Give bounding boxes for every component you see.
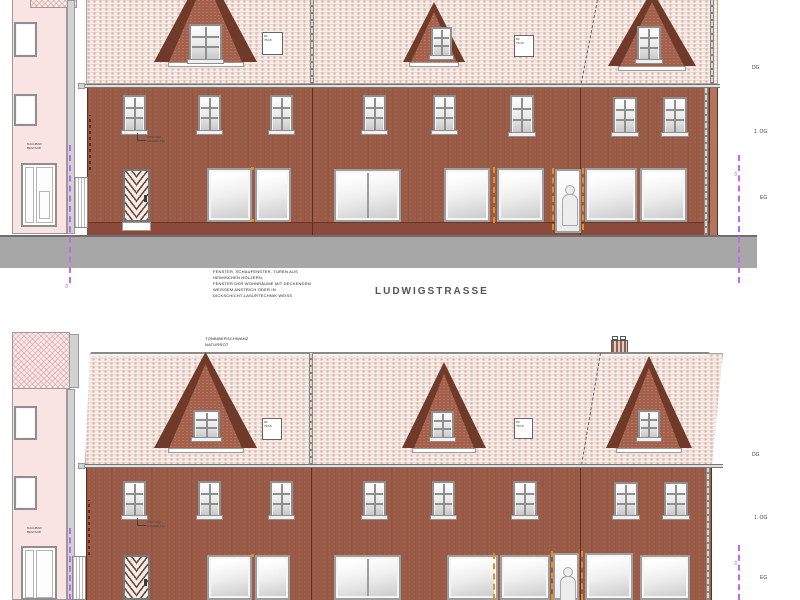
skylight-size: 76/18 bbox=[516, 424, 531, 428]
floor-label-eg: EG bbox=[760, 575, 767, 581]
entrance-door-glass bbox=[555, 169, 581, 233]
shop-window bbox=[497, 168, 544, 222]
shop-window bbox=[207, 168, 252, 222]
facade-plinth bbox=[87, 222, 710, 235]
window bbox=[198, 95, 221, 133]
window bbox=[510, 95, 534, 135]
neighbor-label-line: BESTAND bbox=[27, 530, 42, 534]
skylight: DF 76/18 bbox=[514, 35, 534, 57]
floor-label-eg: EG bbox=[760, 195, 767, 201]
skylight: DF 76/18 bbox=[262, 32, 283, 55]
materials-note: FENSTER, SCHAUFENSTER, TÜREN AUS HEIMISC… bbox=[213, 269, 311, 299]
window bbox=[270, 481, 293, 518]
downpipe bbox=[310, 0, 314, 84]
marker-dashed bbox=[493, 167, 495, 223]
window bbox=[432, 481, 455, 518]
marker-dashed bbox=[581, 551, 583, 600]
shop-window bbox=[585, 553, 633, 600]
guard-note-line: SICHERUNG bbox=[147, 524, 165, 528]
marker-dashed bbox=[582, 168, 584, 230]
gutter-bracket bbox=[78, 83, 85, 89]
leader-line bbox=[137, 525, 146, 526]
leader-line bbox=[137, 140, 146, 141]
dormer-window bbox=[189, 24, 222, 62]
door-chevron-right bbox=[137, 557, 149, 598]
facade-joint-line bbox=[311, 468, 312, 600]
person-silhouette-body bbox=[562, 194, 578, 226]
neighbor-door bbox=[21, 163, 57, 227]
dormer-sill bbox=[409, 62, 459, 67]
downpipe bbox=[706, 468, 710, 600]
neighbor-window bbox=[14, 476, 37, 510]
skylight-size: 76/18 bbox=[264, 38, 281, 42]
entrance-door-wood bbox=[123, 555, 150, 600]
door-pane bbox=[39, 191, 50, 219]
shop-window bbox=[207, 555, 252, 600]
door-handle bbox=[144, 195, 147, 202]
property-boundary-line bbox=[69, 528, 71, 600]
floor-label-og: 1. OG bbox=[754, 129, 767, 135]
skylight-size: 76/18 bbox=[516, 41, 532, 45]
shop-window bbox=[255, 168, 291, 222]
skylight: DF 76/18 bbox=[262, 418, 282, 440]
property-boundary-line bbox=[738, 545, 740, 600]
materials-note-line: DICKSCHICHT-LASURTECHNIK WEISS bbox=[213, 293, 311, 299]
shop-window bbox=[640, 168, 687, 222]
shop-window bbox=[255, 555, 290, 600]
dormer-sill bbox=[168, 448, 244, 453]
marker-dot bbox=[251, 554, 254, 557]
window bbox=[433, 95, 456, 133]
dormer-window bbox=[431, 27, 452, 58]
skylight-size: 76/18 bbox=[264, 424, 280, 428]
window bbox=[614, 482, 638, 518]
wall-return bbox=[710, 88, 718, 235]
dormer-window bbox=[637, 26, 661, 62]
street-name-label: LUDWIGSTRASSE bbox=[375, 286, 489, 297]
shop-window-double bbox=[334, 555, 401, 600]
neighbor-window bbox=[14, 94, 37, 126]
window bbox=[664, 482, 688, 518]
guard-note: ABSTURZ- SICHERUNG bbox=[147, 135, 165, 143]
skylight: DF 76/18 bbox=[514, 418, 533, 439]
shop-window bbox=[585, 168, 637, 222]
gutter-bracket bbox=[78, 463, 85, 469]
window bbox=[613, 97, 637, 135]
window bbox=[663, 97, 687, 135]
shop-window bbox=[447, 555, 498, 600]
entrance-door-glass bbox=[553, 553, 579, 600]
elevation-sheet: DF 76/18 DF 76/18 ABST bbox=[0, 0, 800, 600]
property-boundary-line bbox=[69, 145, 71, 283]
boundary-label: Gr. bbox=[64, 283, 69, 288]
marker-dot bbox=[251, 167, 254, 170]
door-chevron-left bbox=[125, 171, 137, 220]
shop-window-double bbox=[334, 169, 401, 222]
chimney-cap bbox=[612, 336, 618, 340]
door-threshold bbox=[122, 222, 151, 231]
property-boundary-line bbox=[738, 155, 740, 283]
dormer-sill bbox=[616, 448, 682, 453]
roof-material-note: TONBIBERSCHWANZ NATURROT bbox=[205, 336, 248, 348]
dormer-sill bbox=[412, 448, 476, 453]
door-chevron-left bbox=[125, 557, 137, 598]
door-side-panel bbox=[25, 167, 34, 223]
marker-dashed bbox=[552, 168, 554, 230]
shop-window bbox=[500, 555, 550, 600]
boundary-label: Gr. bbox=[733, 171, 738, 176]
marker-dot bbox=[251, 219, 254, 222]
person-silhouette-body bbox=[560, 576, 576, 600]
neighbor-chimney bbox=[69, 334, 79, 388]
neighbor-window bbox=[14, 406, 37, 440]
floor-label-dg: DG bbox=[752, 65, 760, 71]
fence-gate bbox=[72, 556, 86, 600]
window bbox=[123, 95, 146, 133]
window bbox=[363, 95, 386, 133]
neighbor-label-line: BESTAND bbox=[27, 146, 42, 150]
floor-label-dg: DG bbox=[752, 452, 760, 458]
boundary-label: Gr. bbox=[733, 560, 738, 565]
door-leaf bbox=[36, 550, 53, 598]
window bbox=[198, 481, 221, 518]
facade-joint-line bbox=[312, 88, 313, 235]
shop-window bbox=[444, 168, 490, 222]
fence-gate bbox=[74, 177, 88, 228]
roof-note-line: NATURROT bbox=[205, 342, 248, 348]
window bbox=[363, 481, 386, 518]
dormer-sill bbox=[618, 66, 686, 71]
edge-dimension-ticks bbox=[88, 500, 90, 555]
neighbor-window bbox=[14, 22, 37, 57]
downpipe bbox=[710, 0, 714, 84]
guard-note: ABSTURZ- SICHERUNG bbox=[147, 520, 165, 528]
neighbor-label: NACHBAR BESTAND bbox=[27, 142, 42, 150]
downpipe bbox=[309, 353, 313, 465]
window bbox=[123, 481, 146, 518]
floor-label-og: 1. OG bbox=[754, 515, 767, 521]
guard-note-line: SICHERUNG bbox=[147, 139, 165, 143]
edge-dimension-ticks bbox=[89, 115, 91, 170]
neighbor-door bbox=[21, 546, 57, 600]
entrance-door-wood bbox=[123, 169, 150, 222]
chimney-cap bbox=[620, 336, 626, 340]
neighbor-label: NACHBAR BESTAND bbox=[27, 526, 42, 534]
neighbor-roof bbox=[12, 332, 70, 389]
marker-dashed bbox=[493, 553, 495, 600]
door-side-panel bbox=[25, 550, 34, 598]
ridge-cap bbox=[91, 354, 709, 356]
downpipe bbox=[704, 88, 708, 235]
dormer-window bbox=[638, 410, 660, 440]
dormer-window bbox=[431, 411, 454, 440]
window bbox=[513, 481, 537, 518]
shop-window bbox=[640, 555, 690, 600]
street-surface bbox=[0, 235, 757, 268]
dormer-window bbox=[193, 410, 220, 440]
window bbox=[270, 95, 293, 133]
door-handle bbox=[144, 579, 147, 586]
